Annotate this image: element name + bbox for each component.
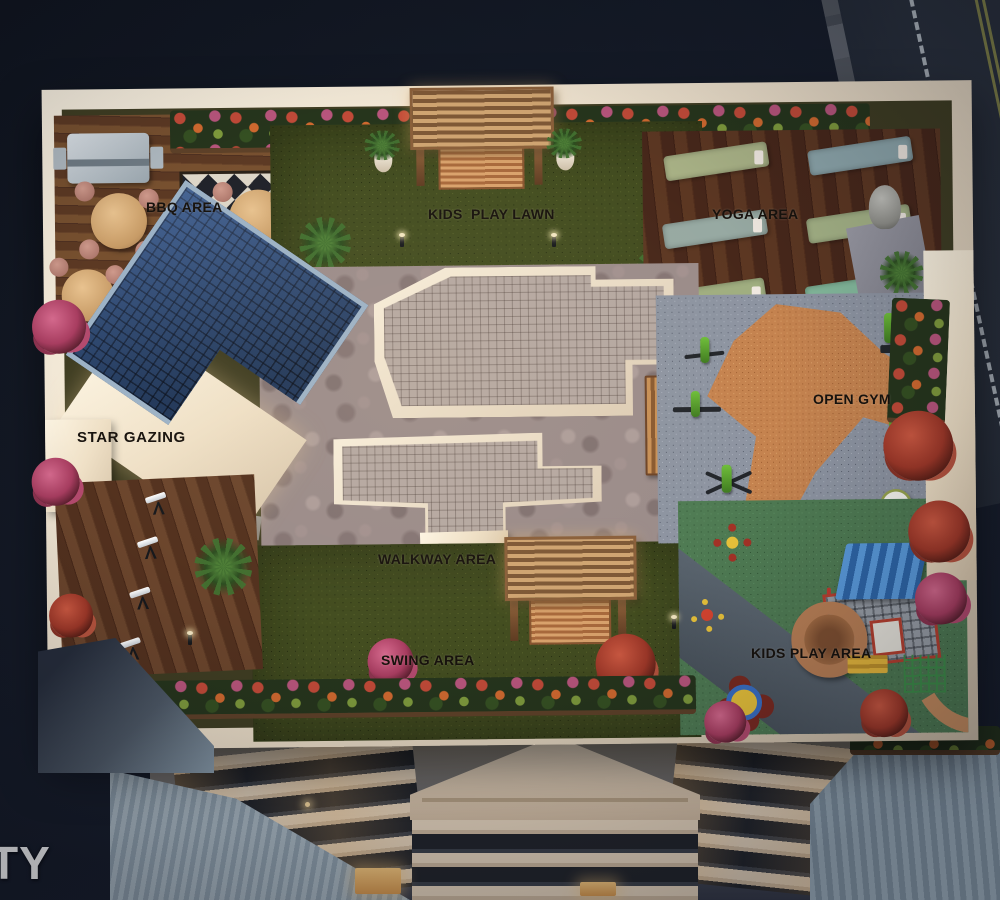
- telescope: [127, 589, 156, 612]
- gym-equipment: [691, 391, 700, 417]
- south-planter-hedge: [136, 675, 696, 720]
- flowering-bush: [32, 299, 87, 354]
- bbq-grill-shelf-left: [53, 148, 66, 170]
- bollard-light: [400, 236, 404, 247]
- lit-window-center: [580, 882, 616, 896]
- label-bbq-area: BBQ AREA: [146, 199, 223, 215]
- deck-palm: [193, 536, 254, 597]
- flowering-bush: [704, 701, 746, 743]
- flowering-bush: [860, 689, 909, 738]
- pergola-roof: [410, 87, 555, 151]
- gym-equipment: [722, 465, 732, 493]
- pediment-molding: [422, 798, 688, 802]
- bollard-light: [188, 634, 192, 645]
- watermark-text: TY: [0, 836, 51, 890]
- bbq-grill-band: [67, 159, 149, 167]
- raised-platform-north: [373, 265, 675, 418]
- building-facade: [110, 730, 1000, 900]
- mat-towel: [754, 150, 763, 164]
- swing-pergola: [504, 536, 631, 645]
- facade-center-floors: [412, 820, 698, 900]
- mat-towel: [898, 145, 907, 159]
- bbq-grill-shelf-right: [150, 147, 163, 169]
- gym-equipment: [700, 337, 709, 363]
- lawn-swing-pergola: [410, 87, 549, 188]
- play-climb-mesh: [904, 654, 946, 692]
- flowering-bush: [31, 458, 80, 507]
- label-swing-area: SWING AREA: [381, 652, 474, 668]
- label-kids-play-lawn: KIDS PLAY LAWN: [428, 206, 555, 222]
- flowering-bush: [908, 500, 971, 563]
- label-kids-play-area: KIDS PLAY AREA: [751, 645, 871, 661]
- bbq-chair: [75, 181, 95, 201]
- flowering-bush: [915, 572, 968, 625]
- label-yoga-area: YOGA AREA: [712, 206, 798, 222]
- bollard-light: [672, 618, 676, 629]
- label-star-gazing: STAR GAZING: [77, 429, 186, 446]
- bbq-grill: [67, 133, 150, 184]
- play-art-panel: [869, 617, 905, 656]
- label-open-gym: OPEN GYM: [813, 391, 891, 407]
- spinner-toy: [701, 609, 713, 621]
- swing-seat: [529, 598, 611, 645]
- flowering-bush: [883, 410, 954, 481]
- telescope: [143, 494, 172, 517]
- label-walkway-area: WALKWAY AREA: [378, 551, 496, 567]
- buddha-statue: [869, 185, 901, 229]
- facade-spotlight-left: [305, 802, 310, 807]
- gym-east-planter: [887, 298, 950, 425]
- flowering-bush: [49, 593, 93, 637]
- lit-window-left: [355, 868, 401, 894]
- pergola-roof: [504, 536, 637, 601]
- statue-palm: [879, 251, 923, 295]
- rooftop-render-scene: BBQ AREA KIDS PLAY LAWN YOGA AREA STAR G…: [0, 0, 1000, 900]
- bollard-light: [552, 236, 556, 247]
- spinner-toy: [726, 537, 738, 549]
- telescope: [135, 538, 164, 561]
- platform-tile-top: [384, 274, 665, 406]
- swing-seat: [438, 145, 524, 190]
